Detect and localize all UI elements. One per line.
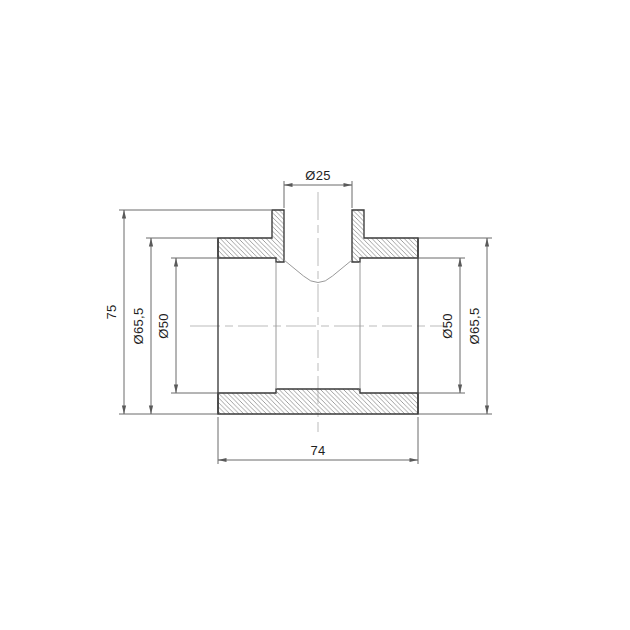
bottom-wall-section (218, 389, 418, 414)
dimension-label-branch-diameter: Ø25 (305, 168, 330, 183)
dimension-label-outer-diameter-left: Ø65,5 (131, 308, 146, 345)
dimension-label-inner-diameter-right: Ø50 (440, 313, 455, 338)
dimension-label-outer-diameter-right: Ø65,5 (467, 308, 482, 345)
dimension-label-overall-length: 74 (310, 443, 325, 458)
technical-drawing-canvas: Ø25 75 Ø65,5 (0, 0, 630, 630)
drawing-page: Ø25 75 Ø65,5 (0, 0, 630, 630)
drawing-background (0, 0, 630, 630)
dimension-label-overall-height: 75 (104, 304, 119, 319)
dimension-label-inner-diameter-left: Ø50 (156, 313, 171, 338)
